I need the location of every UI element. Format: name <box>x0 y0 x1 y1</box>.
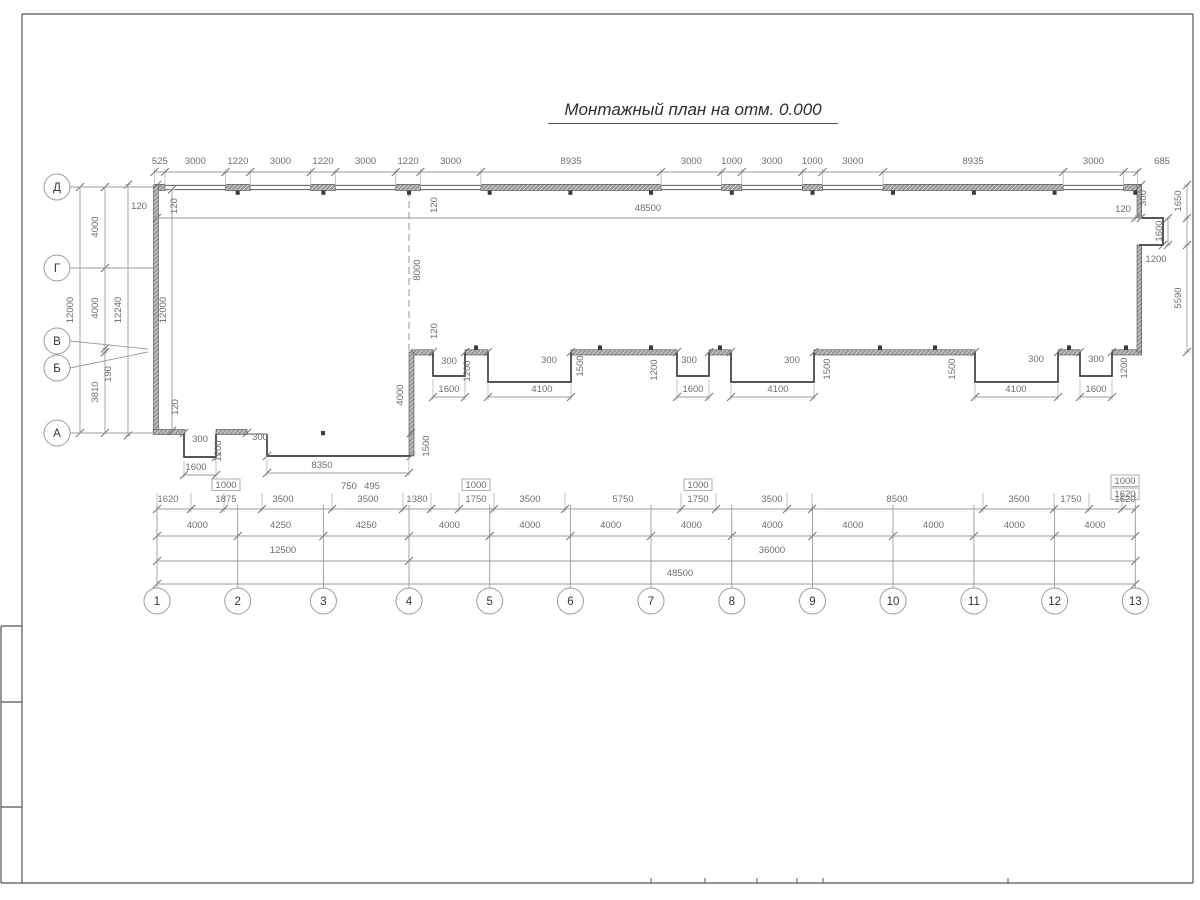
dim-label: 3500 <box>761 494 782 505</box>
dim-label: 4000 <box>90 297 101 318</box>
dim-label: 3000 <box>762 156 783 167</box>
wall-panel <box>722 184 742 190</box>
wall-panel <box>311 184 336 190</box>
dim-label: 1600 <box>1154 220 1165 241</box>
column-mark <box>474 345 478 349</box>
dimension-lines: 5253000122030001220300012203000893530001… <box>65 156 1191 588</box>
column-mark <box>598 345 602 349</box>
dim-label: 1200 <box>462 360 473 381</box>
column-mark <box>718 345 722 349</box>
dim-label: 4100 <box>1005 384 1026 395</box>
column-mark <box>972 191 976 195</box>
dim-label: 8935 <box>963 156 984 167</box>
wall-panel <box>802 184 822 190</box>
row-axis-label: Б <box>53 363 61 375</box>
dim-label: 4000 <box>187 520 208 531</box>
dim-label: 12000 <box>158 297 169 323</box>
dim-label: 1200 <box>1119 357 1130 378</box>
dim-label: 48500 <box>635 203 661 214</box>
column-mark <box>568 191 572 195</box>
wall-panel <box>883 184 1063 190</box>
dim-label: 1000 <box>1114 476 1135 487</box>
column-axis-label: 2 <box>234 596 240 608</box>
dim-label: 4000 <box>842 520 863 531</box>
column-axis-label: 4 <box>406 596 413 608</box>
axis-leader-line <box>70 341 148 349</box>
column-axis-label: 9 <box>809 596 815 608</box>
row-axis-label: А <box>53 428 61 440</box>
column-mark <box>730 191 734 195</box>
wall-outline <box>488 352 571 382</box>
dim-label: 1200 <box>649 359 660 380</box>
dim-label: 1620 <box>157 494 178 505</box>
column-mark <box>933 345 937 349</box>
wall-panel <box>571 350 677 355</box>
dim-label: 1620 <box>1114 489 1135 500</box>
dim-label: 120 <box>429 323 440 339</box>
dim-label: 1750 <box>465 494 486 505</box>
dim-label: 120 <box>169 198 180 214</box>
column-axis-label: 10 <box>887 596 900 608</box>
dim-label: 48500 <box>667 568 693 579</box>
column-axis-label: 13 <box>1129 596 1142 608</box>
page-title: Монтажный план на отм. 0.000 <box>548 100 838 124</box>
dim-label: 3500 <box>357 494 378 505</box>
dim-label: 1000 <box>721 156 742 167</box>
dim-label: 1750 <box>1060 494 1081 505</box>
dim-label: 4000 <box>395 384 406 405</box>
dim-label: 3500 <box>519 494 540 505</box>
column-axis-label: 1 <box>154 596 160 608</box>
dim-label: 1220 <box>398 156 419 167</box>
dim-label: 1000 <box>687 480 708 491</box>
dim-label: 4000 <box>519 520 540 531</box>
dim-label: 3000 <box>1083 156 1104 167</box>
drawing-sheet: 5253000122030001220300012203000893530001… <box>0 0 1200 900</box>
column-mark <box>1067 345 1071 349</box>
dim-label: 525 <box>152 156 168 167</box>
dim-label: 4000 <box>681 520 702 531</box>
column-axis-label: 8 <box>729 596 735 608</box>
dim-label: 4250 <box>270 520 291 531</box>
row-axis-label: Г <box>54 263 61 275</box>
dim-label: 685 <box>1154 156 1170 167</box>
column-mark <box>878 345 882 349</box>
wall-panel <box>465 350 488 355</box>
column-mark <box>407 191 411 195</box>
column-axis-label: 5 <box>486 596 492 608</box>
wall-panel <box>1137 245 1142 352</box>
dim-label: 3000 <box>185 156 206 167</box>
row-axis-label: В <box>53 336 61 348</box>
dim-label: 1500 <box>421 435 432 456</box>
wall-panel <box>481 184 661 190</box>
dim-label: 1500 <box>822 358 833 379</box>
wall-panel <box>1058 350 1080 355</box>
dim-label: 300 <box>1028 354 1044 365</box>
dim-label: 1220 <box>312 156 333 167</box>
dim-label: 750 <box>341 481 357 492</box>
dim-label: 4000 <box>600 520 621 531</box>
dim-label: 1750 <box>687 494 708 505</box>
wall-outline <box>731 352 814 382</box>
column-mark <box>649 191 653 195</box>
wall-panel <box>709 350 731 355</box>
dim-label: 3000 <box>440 156 461 167</box>
dim-label: 4000 <box>1004 520 1025 531</box>
dim-label: 1220 <box>227 156 248 167</box>
drawing-frame <box>1 14 1193 883</box>
dim-label: 1600 <box>1085 384 1106 395</box>
wall-panel <box>226 184 251 190</box>
wall-panel <box>216 430 247 435</box>
dim-label: 1000 <box>215 480 236 491</box>
dim-label: 1600 <box>185 462 206 473</box>
column-mark <box>321 191 325 195</box>
dim-label: 1500 <box>575 355 586 376</box>
wall-panel <box>396 184 421 190</box>
dim-label: 4000 <box>923 520 944 531</box>
dim-label: 4000 <box>1084 520 1105 531</box>
floor-plan-canvas: 5253000122030001220300012203000893530001… <box>0 0 1200 900</box>
dim-label: 300 <box>1138 190 1149 206</box>
dim-label: 8000 <box>412 259 423 280</box>
column-axis-label: 11 <box>968 596 980 608</box>
column-mark <box>321 431 325 435</box>
dim-label: 12500 <box>270 545 296 556</box>
dim-label: 3000 <box>681 156 702 167</box>
dim-label: 1380 <box>406 494 427 505</box>
column-mark <box>236 191 240 195</box>
dim-label: 4000 <box>439 520 460 531</box>
dim-label: 4000 <box>90 216 101 237</box>
column-axis-label: 6 <box>567 596 573 608</box>
dim-label: 1200 <box>1145 254 1166 265</box>
dim-label: 190 <box>103 366 114 382</box>
dim-label: 36000 <box>759 545 785 556</box>
dim-label: 120 <box>1115 204 1131 215</box>
column-axis-label: 3 <box>320 596 326 608</box>
dim-label: 300 <box>1088 354 1104 365</box>
dim-label: 4250 <box>356 520 377 531</box>
dim-label: 12240 <box>113 297 124 323</box>
axis-markers: ДГВБА12345678910111213 <box>44 174 1148 614</box>
dim-label: 1000 <box>465 480 486 491</box>
column-mark <box>1053 191 1057 195</box>
building-walls <box>154 184 1164 457</box>
dim-label: 120 <box>170 399 181 415</box>
column-mark <box>488 191 492 195</box>
dim-label: 5750 <box>612 494 633 505</box>
dim-label: 120 <box>131 201 147 212</box>
dim-label: 12000 <box>65 297 76 323</box>
wall-outline <box>267 434 411 456</box>
wall-panel <box>814 350 975 355</box>
dim-label: 3000 <box>270 156 291 167</box>
dim-label: 1875 <box>215 494 236 505</box>
dim-label: 4000 <box>762 520 783 531</box>
column-mark <box>1124 345 1128 349</box>
dim-label: 5590 <box>1173 287 1184 308</box>
wall-outline <box>975 352 1058 382</box>
column-mark <box>1133 191 1137 195</box>
dim-label: 300 <box>441 356 457 367</box>
dim-label: 4100 <box>531 384 552 395</box>
dim-label: 300 <box>784 355 800 366</box>
dim-label: 8500 <box>886 494 907 505</box>
dim-label: 1600 <box>438 384 459 395</box>
column-axis-label: 12 <box>1048 596 1061 608</box>
dim-label: 3810 <box>90 381 101 402</box>
column-mark <box>811 191 815 195</box>
dim-label: 300 <box>192 434 208 445</box>
dim-label: 120 <box>429 197 440 213</box>
dim-label: 3500 <box>272 494 293 505</box>
axis-leader-line <box>70 352 148 368</box>
column-mark <box>649 345 653 349</box>
dim-label: 1500 <box>947 358 958 379</box>
row-axis-label: Д <box>53 182 61 194</box>
dim-label: 3000 <box>355 156 376 167</box>
column-mark <box>891 191 895 195</box>
dim-label: 300 <box>252 432 268 443</box>
dim-label: 495 <box>364 481 380 492</box>
column-axis-label: 7 <box>648 596 654 608</box>
dim-label: 4100 <box>767 384 788 395</box>
dim-label: 3500 <box>1008 494 1029 505</box>
dim-label: 300 <box>541 355 557 366</box>
dim-label: 3000 <box>842 156 863 167</box>
wall-panel <box>409 352 414 456</box>
dim-label: 300 <box>681 355 697 366</box>
dim-label: 1000 <box>802 156 823 167</box>
dim-label: 8935 <box>560 156 581 167</box>
dim-label: 1600 <box>682 384 703 395</box>
dim-label: 1650 <box>1173 190 1184 211</box>
dim-label: 8350 <box>311 460 332 471</box>
